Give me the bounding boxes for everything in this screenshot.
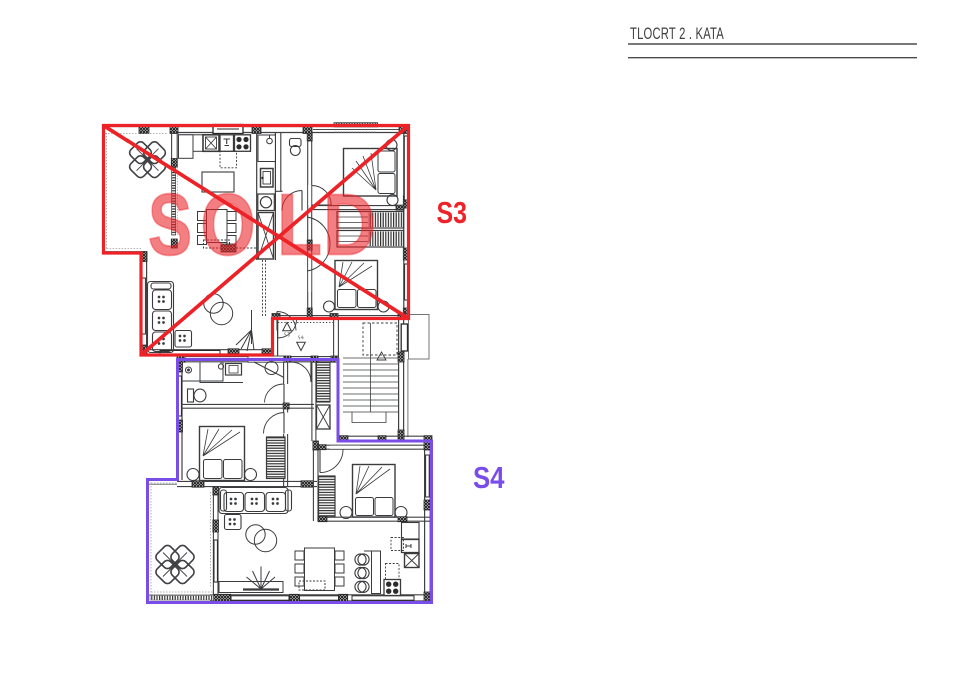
svg-text:TLOCRT 2 . KATA: TLOCRT 2 . KATA <box>630 25 724 43</box>
svg-text:S: S <box>148 177 192 274</box>
svg-text:S3: S3 <box>437 195 468 230</box>
svg-text:S4: S4 <box>473 460 505 495</box>
